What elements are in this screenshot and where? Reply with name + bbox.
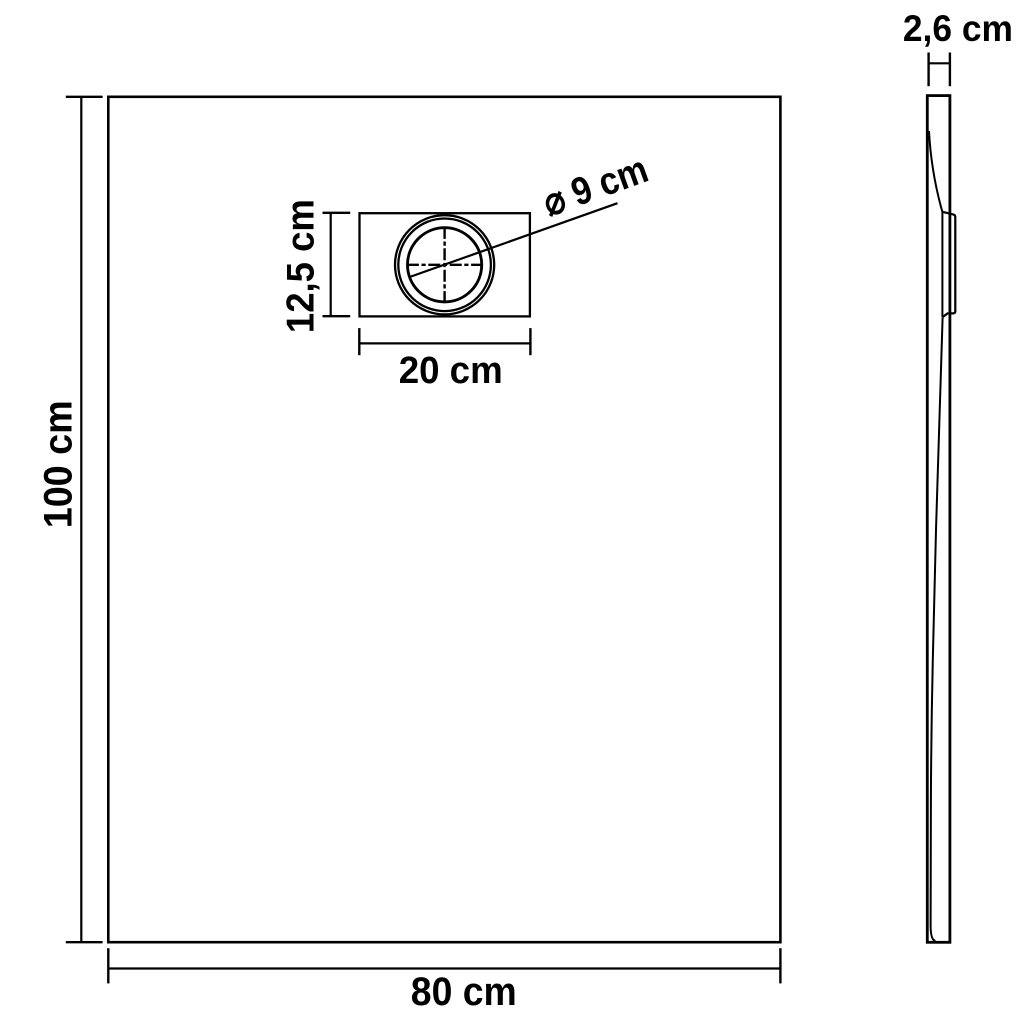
svg-text:12,5 cm: 12,5 cm: [280, 199, 323, 333]
svg-text:20 cm: 20 cm: [399, 350, 503, 392]
svg-text:80 cm: 80 cm: [411, 970, 517, 1014]
svg-text:100 cm: 100 cm: [37, 400, 81, 528]
svg-text:2,6 cm: 2,6 cm: [903, 8, 1013, 49]
